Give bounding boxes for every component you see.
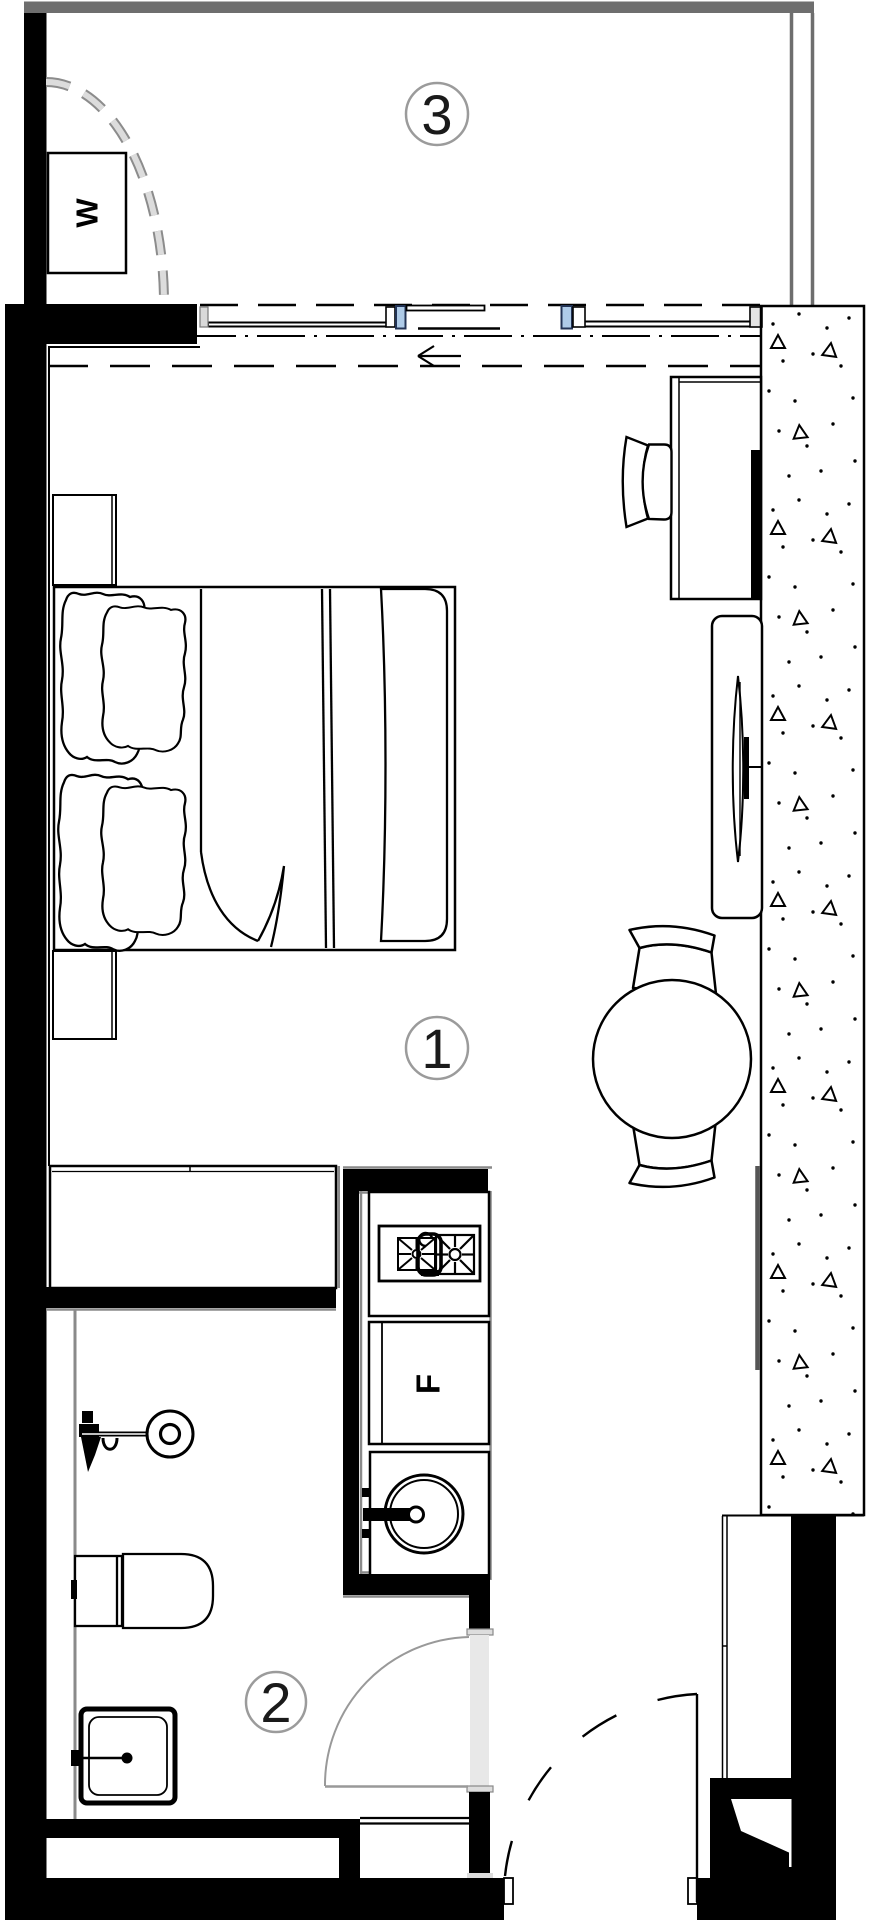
svg-text:F: F (410, 1374, 447, 1394)
svg-text:3: 3 (421, 83, 452, 146)
svg-text:2: 2 (260, 1671, 291, 1734)
svg-text:1: 1 (421, 1017, 452, 1080)
svg-text:W: W (70, 198, 105, 228)
